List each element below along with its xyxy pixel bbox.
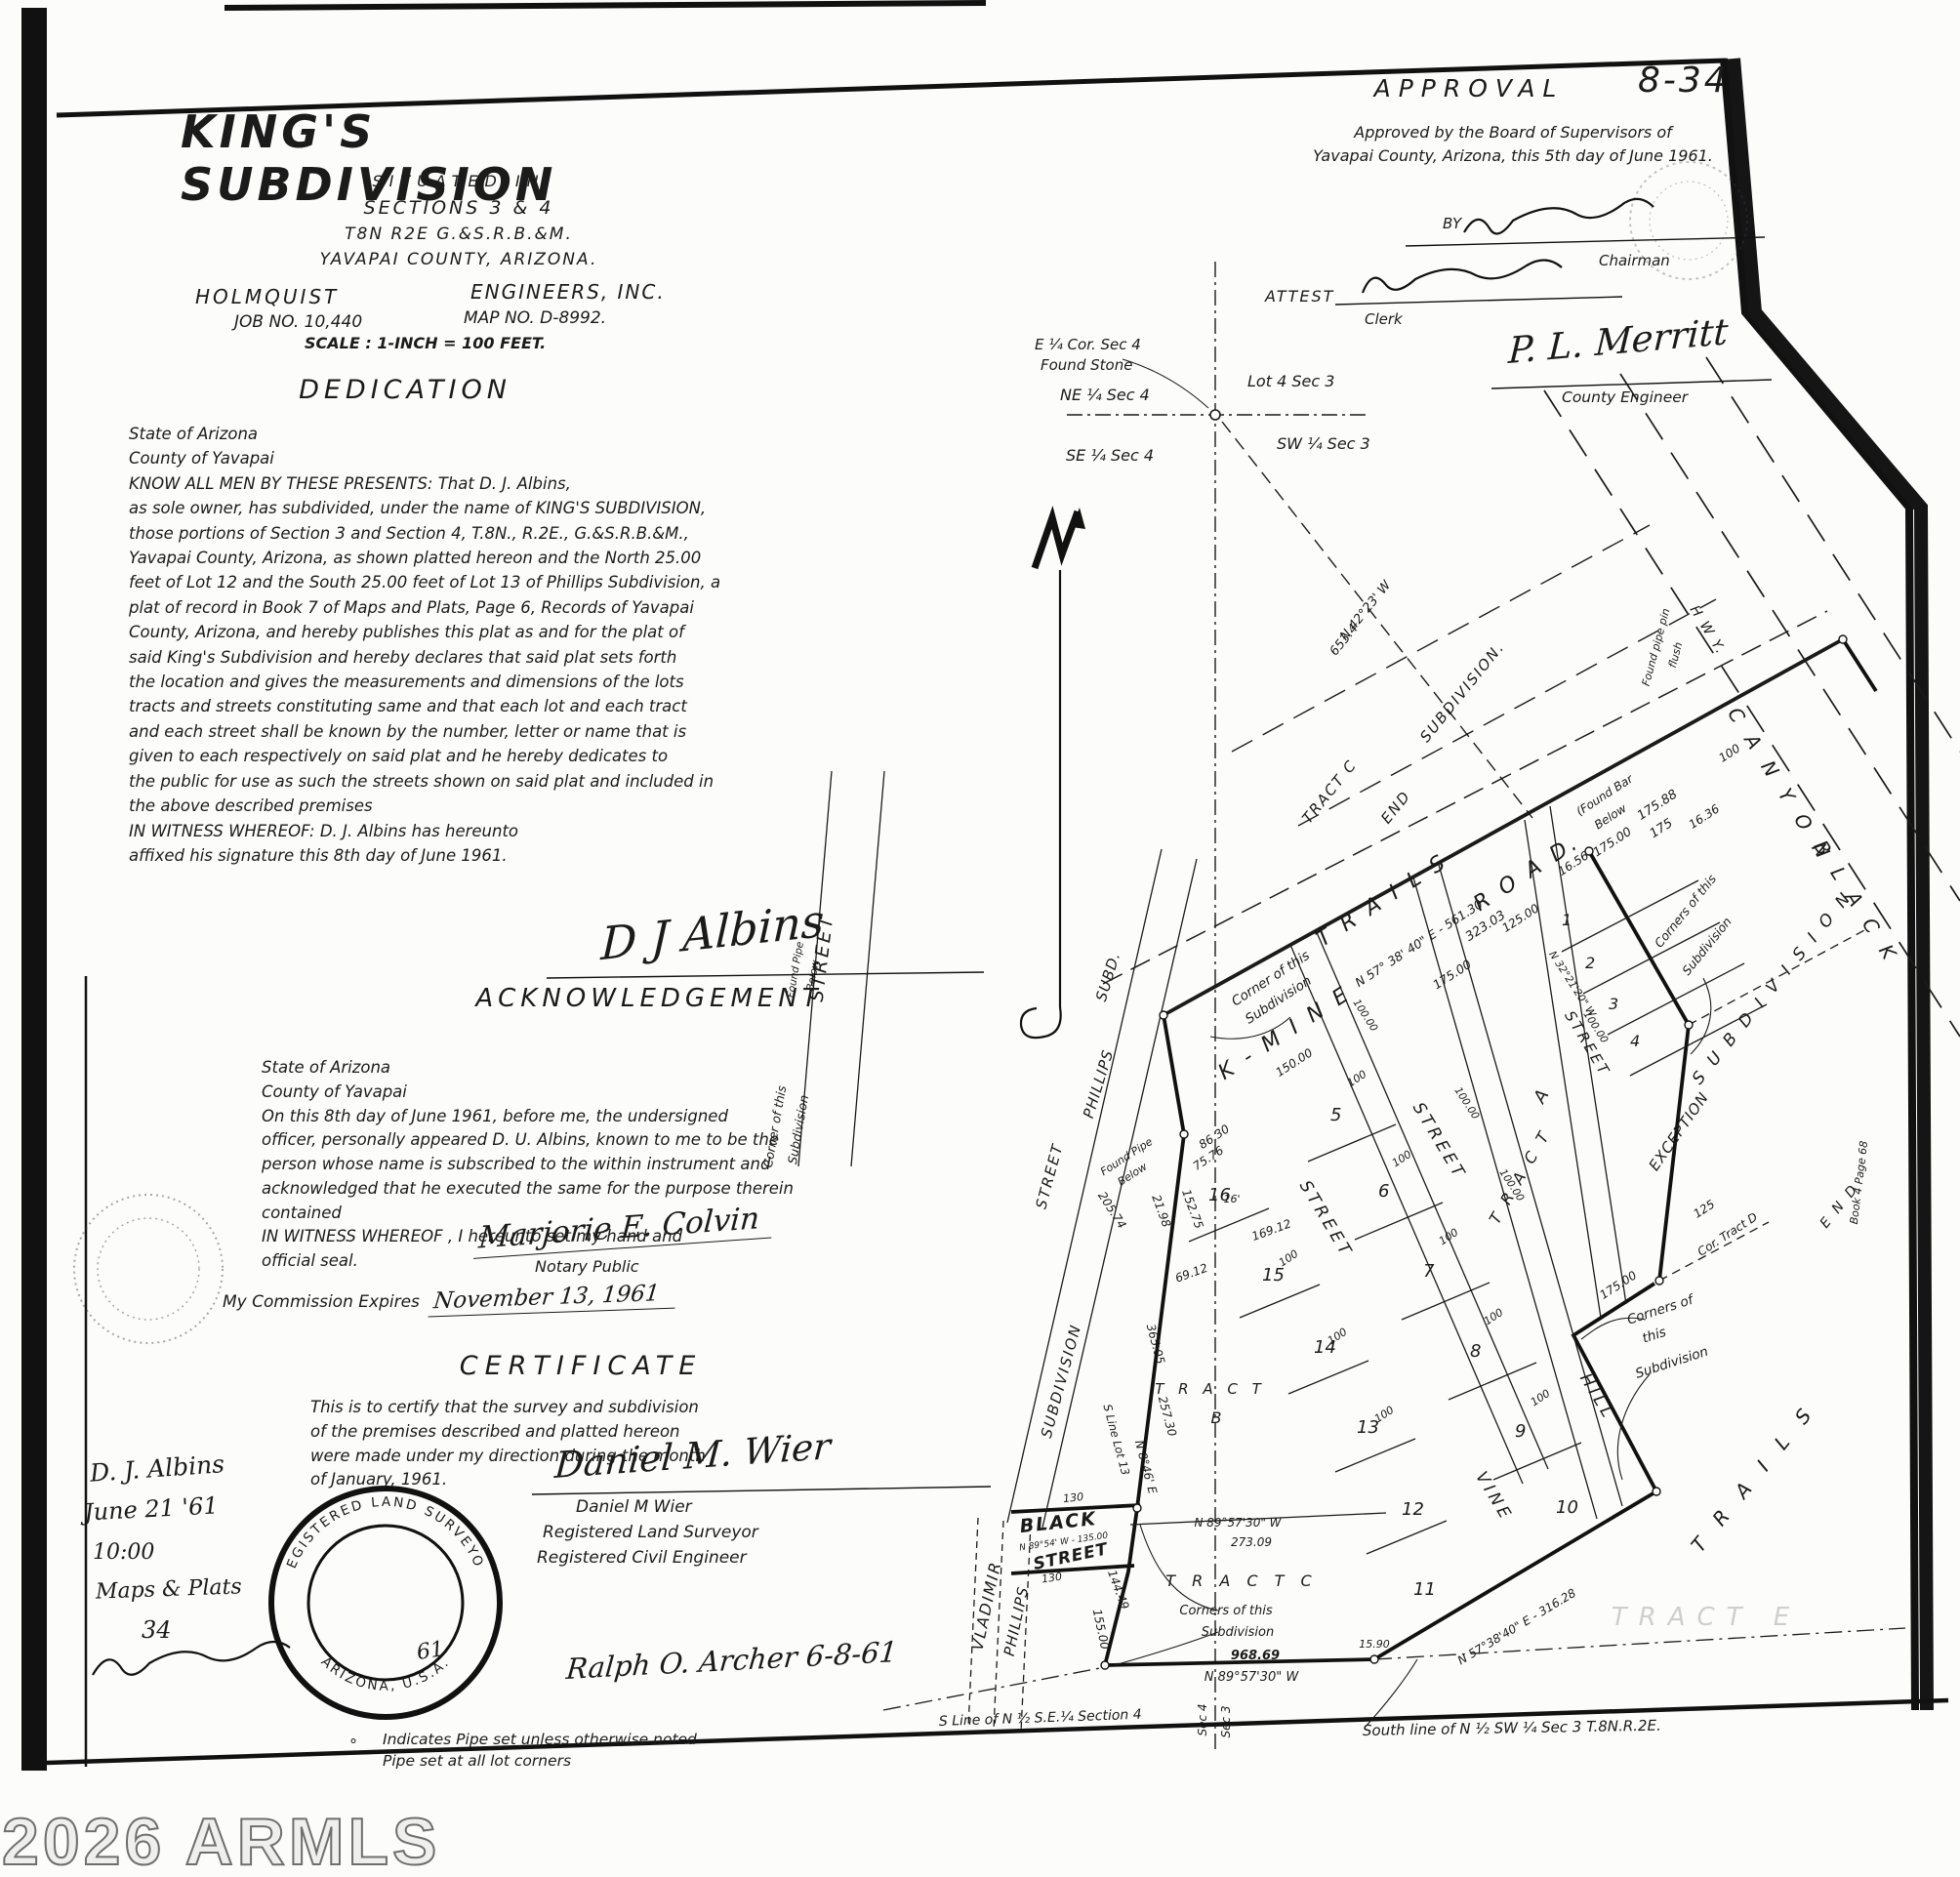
map-label: S Line Lot 13 — [1100, 1403, 1132, 1477]
surveyor-title1: Registered Land Surveyor — [543, 1523, 758, 1542]
job-number: JOB NO. 10,440 — [234, 312, 362, 332]
map-label: 9 — [1515, 1421, 1526, 1442]
map-label: TRACT E — [1612, 1603, 1801, 1632]
map-label: 12 — [1402, 1499, 1424, 1520]
map-label: 15.90 — [1359, 1638, 1390, 1651]
map-label: 155.00 — [1090, 1608, 1112, 1651]
sheet-number: 8-34 — [1638, 61, 1730, 101]
map-label: 16 — [1208, 1185, 1231, 1205]
approval-by-label: BY — [1443, 215, 1461, 232]
map-label: Sec 4 — [1196, 1703, 1209, 1735]
county-engineer-label: County Engineer — [1562, 388, 1688, 406]
map-label: N 89°57'30" W — [1205, 1670, 1300, 1685]
plat-title: KING'S SUBDIVISION — [181, 105, 737, 211]
section-corner-monument — [1210, 410, 1220, 420]
map-label: NE ¼ Sec 4 — [1060, 386, 1150, 404]
map-label: 100 — [1437, 1226, 1461, 1247]
map-label: T R A I L S — [1687, 1398, 1821, 1556]
dedication-heading: DEDICATION — [288, 375, 522, 405]
map-label: 968.69 — [1231, 1649, 1280, 1663]
map-label: 257.30 — [1156, 1395, 1179, 1439]
surveyor-title2: Registered Civil Engineer — [537, 1548, 747, 1568]
map-label: 100 — [1529, 1387, 1553, 1408]
map-label: END — [1377, 787, 1414, 827]
plat-drawing: REGISTERED LAND SURVEYOR ARIZONA, U.S.A.… — [0, 0, 1960, 1877]
map-label: SE ¼ Sec 4 — [1066, 446, 1154, 465]
dedication-body: State of Arizona County of Yavapai KNOW … — [129, 422, 822, 868]
map-label: 125 — [1691, 1198, 1717, 1221]
map-label: Found Stone — [1041, 356, 1132, 374]
map-label: 653.4 — [1327, 622, 1362, 659]
map-label: N 8°46' E — [1132, 1439, 1160, 1495]
chairman-label: Chairman — [1599, 252, 1670, 269]
map-label: 15 — [1262, 1265, 1285, 1285]
map-label: T R A C T — [1486, 1125, 1555, 1227]
map-label: STREET — [1033, 1141, 1067, 1211]
clerk-label: Clerk — [1365, 310, 1403, 328]
margin-note-3: 10:00 — [93, 1540, 154, 1565]
map-label: Lot 4 Sec 3 — [1247, 372, 1334, 390]
map-label: E ¼ Cor. Sec 4 — [1035, 336, 1141, 353]
map-label: 100 — [1390, 1148, 1414, 1169]
map-label: 4 — [1630, 1032, 1640, 1050]
map-label: 3 — [1609, 995, 1618, 1013]
title-township: T8N R2E G.&S.R.B.&M. — [185, 224, 732, 244]
map-label: 100.00 — [1451, 1085, 1481, 1122]
map-label: 8 — [1470, 1341, 1481, 1362]
map-label: T R A C T — [1155, 1380, 1266, 1398]
map-label: 130 — [1063, 1490, 1084, 1505]
map-label: Sec 3 — [1219, 1705, 1233, 1737]
title-situated: SITUATED IN — [185, 172, 732, 190]
title-sections: SECTIONS 3 & 4 — [185, 197, 732, 219]
chairman-signature — [1464, 199, 1654, 234]
map-label: A — [1530, 1086, 1554, 1108]
firm-name-left: HOLMQUIST — [195, 285, 339, 308]
map-label: STREET — [1295, 1177, 1357, 1261]
map-label: 2 — [1585, 954, 1595, 972]
map-label: PHILLIPS — [1080, 1047, 1117, 1121]
map-label: H W Y. — [1687, 603, 1729, 658]
map-label: VINE — [1471, 1468, 1516, 1525]
map-label: this — [1641, 1325, 1668, 1347]
map-number: MAP NO. D-8992. — [464, 308, 606, 328]
map-label: Cor. Tract D — [1695, 1210, 1761, 1259]
certificate-heading: CERTIFICATE — [420, 1351, 742, 1381]
map-label: 100 — [1716, 741, 1742, 764]
margin-note-4: Maps & Plats — [96, 1574, 242, 1604]
map-label: STREET — [1409, 1099, 1470, 1183]
left-edge-bar — [21, 8, 47, 1771]
notary-title: Notary Public — [535, 1257, 639, 1276]
map-label: 7 — [1423, 1261, 1435, 1282]
map-label: 21.98 — [1149, 1193, 1173, 1229]
map-label: 152.75 — [1179, 1188, 1206, 1231]
firm-name-right: ENGINEERS, INC. — [470, 280, 666, 304]
map-label: 273.09 — [1231, 1535, 1272, 1549]
map-label: Corners of this — [1179, 1604, 1272, 1618]
margin-note-5: 34 — [142, 1616, 172, 1644]
map-label: PHILLIPS — [1000, 1585, 1033, 1658]
pipe-set-symbol: ° — [349, 1735, 357, 1754]
map-label: 130 — [1041, 1571, 1063, 1586]
map-label: 175 — [1648, 816, 1676, 841]
seal-year: 61 — [415, 1637, 445, 1665]
map-label: 6 — [1378, 1181, 1389, 1202]
map-label: Subdivision — [1202, 1625, 1275, 1640]
map-label: T R A C T C — [1165, 1571, 1317, 1590]
map-label: 16.36 — [1687, 801, 1723, 832]
acknowledgement-heading: ACKNOWLEDGEMENT — [429, 984, 869, 1013]
map-label: N 89°57'30" W — [1194, 1516, 1282, 1530]
commission-label: My Commission Expires — [223, 1292, 420, 1312]
armls-watermark: 2026 ARMLS — [2, 1804, 440, 1877]
map-label: SUBDIVISION. — [1416, 638, 1508, 746]
map-label: 169.12 — [1250, 1216, 1293, 1244]
map-label: B L A C K — [1809, 836, 1903, 968]
approval-heading: APPROVAL — [1318, 74, 1620, 102]
map-label: SUBD. — [1092, 950, 1123, 1003]
approval-body: Approved by the Board of Supervisors of … — [1249, 121, 1776, 168]
map-label: 11 — [1413, 1579, 1436, 1600]
north-arrow — [1021, 508, 1085, 1038]
section-lines — [1067, 262, 1532, 1752]
map-label: TRACT C — [1298, 756, 1361, 828]
plat-sheet: REGISTERED LAND SURVEYOR ARIZONA, U.S.A.… — [0, 0, 1960, 1877]
map-label: SW ¼ Sec 3 — [1277, 434, 1370, 453]
map-label: 175.00 — [1430, 957, 1474, 992]
map-label: 100.00 — [1350, 998, 1379, 1035]
map-label: 175.88 — [1635, 787, 1680, 823]
map-label: 69.12 — [1173, 1261, 1209, 1285]
notary-seal — [74, 1195, 223, 1343]
recorder-signature — [93, 1642, 290, 1675]
map-label: Subdivision — [1634, 1344, 1711, 1382]
title-county: YAVAPAI COUNTY, ARIZONA. — [185, 250, 732, 269]
scale-note: SCALE : 1-INCH = 100 FEET. — [305, 334, 546, 352]
map-label: 5 — [1330, 1105, 1341, 1125]
map-label: flush — [1666, 640, 1685, 669]
surveyor-name: Daniel M Wier — [576, 1497, 692, 1517]
map-label: 1 — [1562, 911, 1572, 929]
map-label: 365.05 — [1144, 1323, 1167, 1366]
legend-text: Indicates Pipe set unless otherwise note… — [383, 1730, 949, 1772]
map-label: 100 — [1345, 1068, 1369, 1089]
map-label: 10 — [1556, 1497, 1578, 1518]
map-label: B — [1211, 1408, 1222, 1427]
map-label: SUBDIVISION — [1038, 1322, 1085, 1440]
clerk-signature — [1363, 260, 1562, 293]
map-label: Subdivision — [1679, 915, 1735, 978]
attest-label: ATTEST — [1265, 287, 1334, 306]
black-canyon-hwy — [1544, 357, 1960, 1037]
map-label: S U B D I V I S I O N — [1689, 887, 1858, 1089]
map-label: Found pipe pin — [1640, 607, 1673, 687]
